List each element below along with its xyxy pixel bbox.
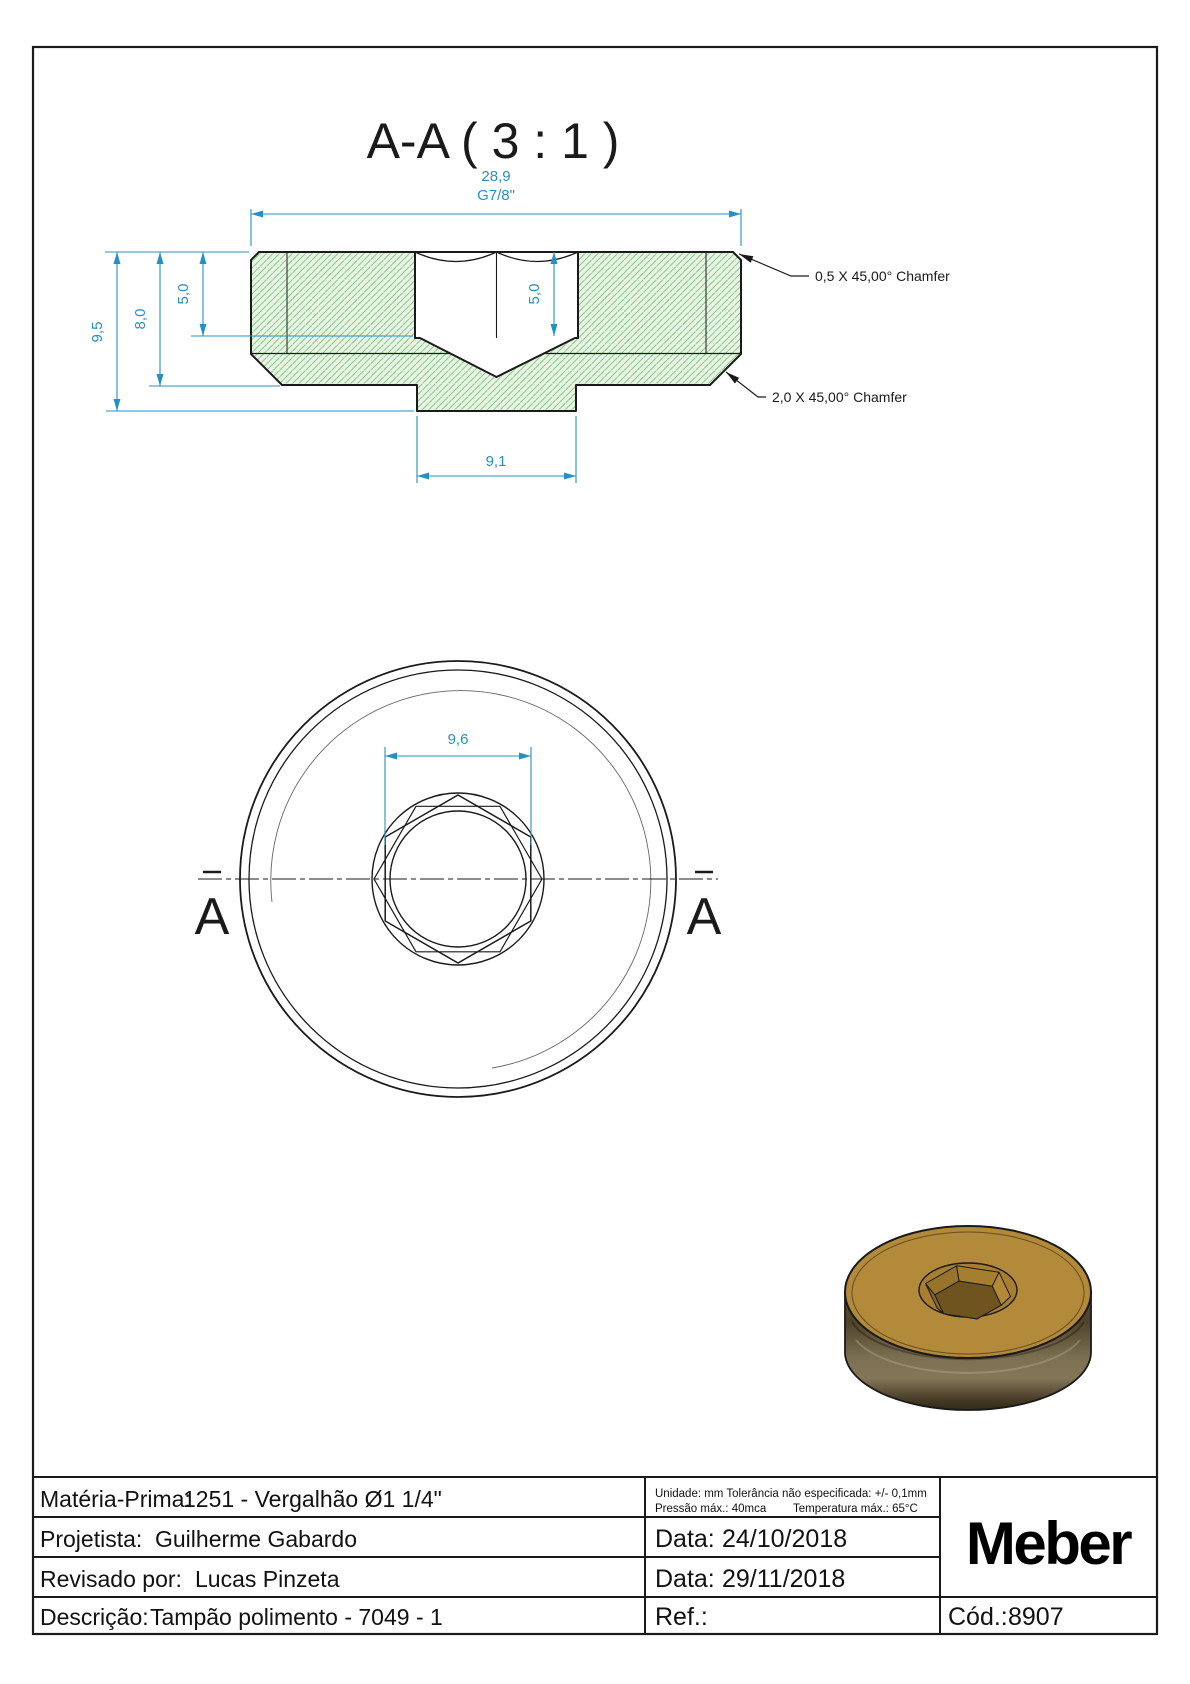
- cod-value: 8907: [1008, 1603, 1064, 1631]
- data1-label: Data:: [655, 1525, 715, 1553]
- pressure-note: Pressão máx.: 40mca: [655, 1503, 767, 1515]
- chamfer-notes: 0,5 X 45,00° Chamfer 2,0 X 45,00° Chamfe…: [726, 254, 950, 405]
- extension-line: [385, 747, 531, 845]
- descricao-label: Descrição:: [40, 1604, 149, 1630]
- dim-body-height: 8,0: [132, 309, 149, 330]
- data2-value: 29/11/2018: [722, 1565, 845, 1593]
- revisado-label: Revisado por:: [40, 1566, 182, 1592]
- drawing-sheet: A-A ( 3 : 1 ): [0, 0, 1190, 1684]
- section-view: A-A ( 3 : 1 ): [89, 113, 950, 483]
- front-view: A A 9,6: [195, 661, 722, 1097]
- arrowhead: [114, 399, 121, 411]
- arrowhead: [200, 252, 207, 264]
- note-chamfer-top: 0,5 X 45,00° Chamfer: [815, 268, 950, 284]
- data1-value: 24/10/2018: [722, 1525, 847, 1553]
- ref-label: Ref.:: [655, 1603, 708, 1631]
- arrowhead: [519, 753, 531, 760]
- section-label-right: A: [687, 888, 722, 946]
- dim-socket-depth: 5,0: [175, 284, 192, 305]
- note-chamfer-bottom: 2,0 X 45,00° Chamfer: [772, 389, 907, 405]
- descricao-value: Tampão polimento - 7049 - 1: [150, 1604, 443, 1630]
- arrowhead: [251, 211, 263, 218]
- dim-spigot-width: 9,1: [486, 453, 507, 470]
- section-label-left: A: [195, 888, 230, 946]
- arrowhead: [157, 374, 164, 386]
- projetista-value: Guilherme Gabardo: [155, 1526, 357, 1552]
- iso-view: [845, 1226, 1091, 1410]
- leader-arrowhead: [726, 372, 739, 384]
- hex-dimension-arrows: 9,6: [385, 731, 531, 760]
- extension-line: [417, 416, 576, 483]
- arrowhead: [200, 324, 207, 336]
- materia-prima-label: Matéria-Prima:: [40, 1486, 191, 1512]
- dim-hex: 9,6: [448, 731, 469, 748]
- cod-label: Cód.:: [948, 1603, 1008, 1631]
- arrowhead: [564, 473, 576, 480]
- dim-width: 28,9: [481, 168, 510, 185]
- data2-label: Data:: [655, 1565, 715, 1593]
- arrowhead: [551, 324, 558, 336]
- temperature-note: Temperatura máx.: 65°C: [793, 1503, 918, 1515]
- arrowhead: [385, 753, 397, 760]
- arrowhead: [551, 252, 558, 264]
- materia-prima-value: 1251 - Vergalhão Ø1 1/4": [183, 1486, 442, 1512]
- dim-socket-depth-inner: 5,0: [526, 284, 543, 305]
- projetista-label: Projetista:: [40, 1526, 142, 1552]
- tolerance-note: Unidade: mm Tolerância não especificada:…: [655, 1488, 927, 1500]
- company-logo: Meber: [966, 1510, 1132, 1577]
- title-block: Matéria-Prima: 1251 - Vergalhão Ø1 1/4" …: [33, 1477, 1157, 1634]
- dim-total-height: 9,5: [89, 322, 106, 343]
- dim-thread: G7/8": [477, 187, 515, 204]
- section-title: A-A ( 3 : 1 ): [367, 113, 620, 169]
- arrowhead: [729, 211, 741, 218]
- revisado-value: Lucas Pinzeta: [195, 1566, 340, 1592]
- arrowhead: [157, 252, 164, 264]
- arrowhead: [417, 473, 429, 480]
- arrowhead: [114, 252, 121, 264]
- hex-dimension: [385, 747, 531, 845]
